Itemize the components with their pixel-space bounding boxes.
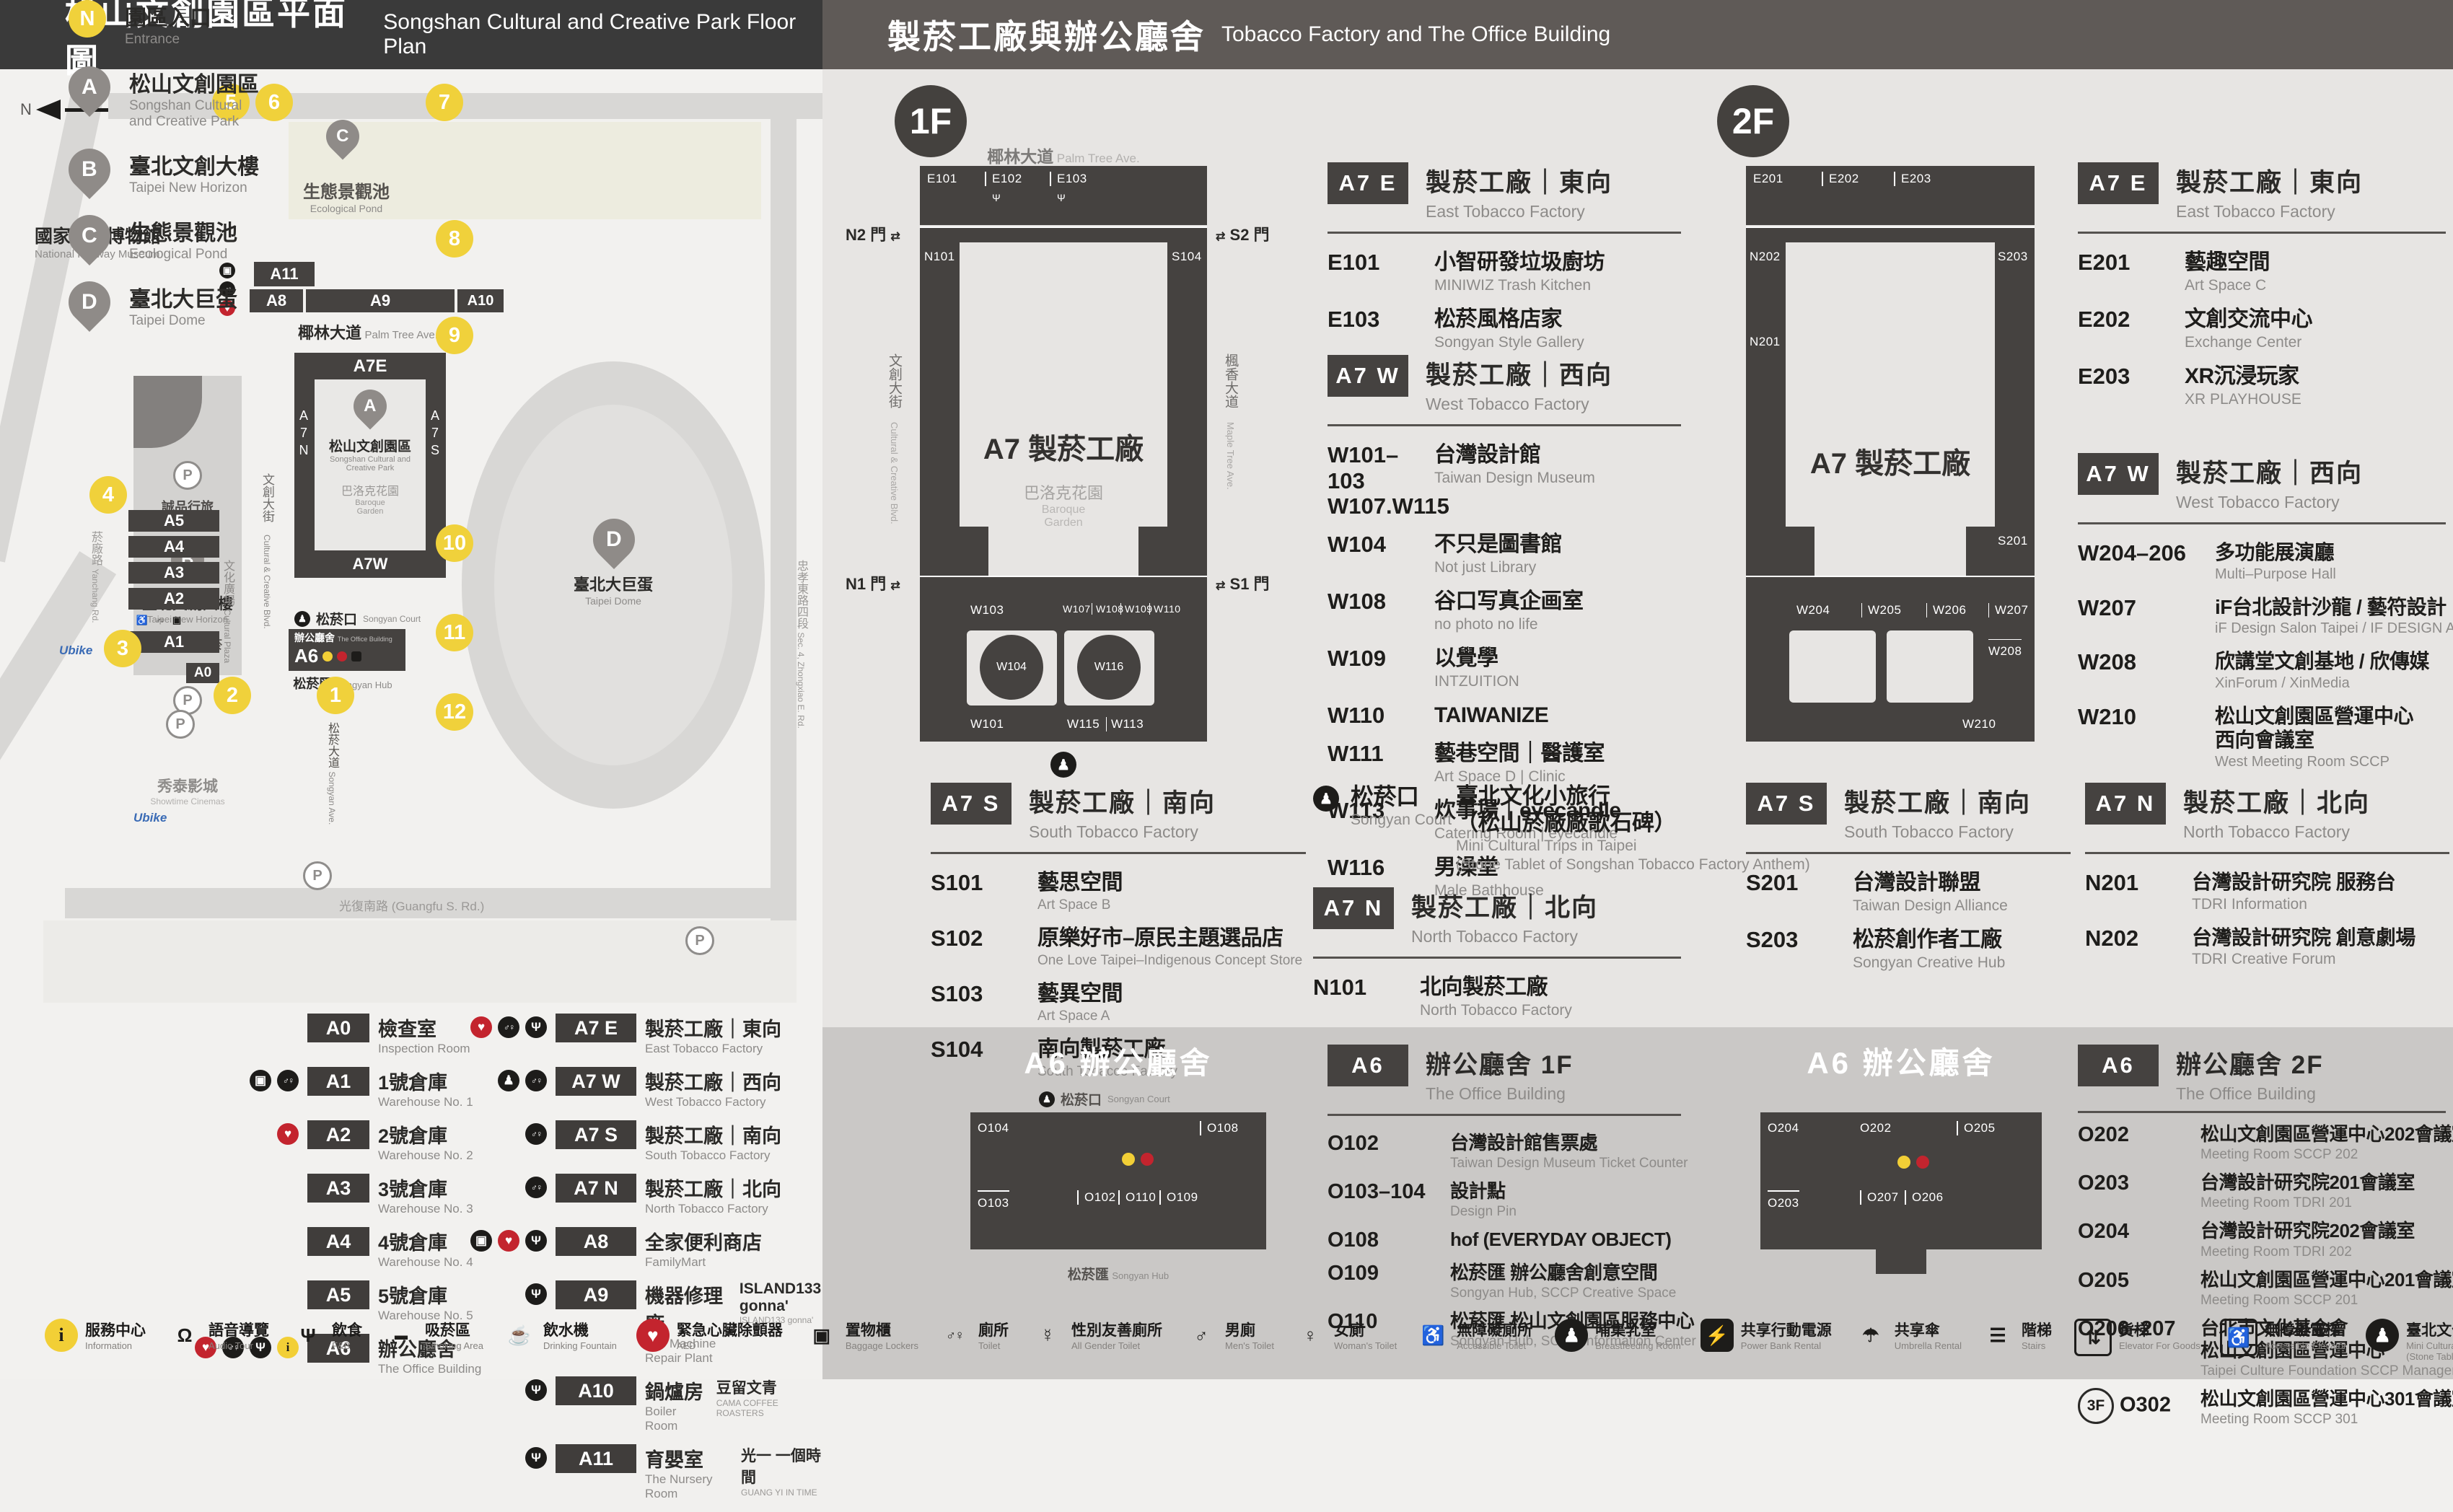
footer-item: 無障礙電梯 Accessible Elevator (2220, 1319, 2346, 1356)
legend-factory-en: The Nursery Room (645, 1472, 734, 1501)
legend-factory-zh: 製菸工廠｜東向 (645, 1014, 781, 1042)
legend-factory-badge: A7 N (556, 1174, 636, 1203)
divider (1328, 232, 1681, 234)
row-icon (1291, 704, 1317, 730)
footer-item: 性別友善廁所 All Gender Toilet (1031, 1319, 1165, 1352)
office-en: The Office Building (338, 636, 392, 643)
room-row: O102 台灣設計館售票處Taiwan Design Museum Ticket… (1328, 1132, 1681, 1172)
park-en2: Creative Park (307, 464, 433, 472)
room-e102: E102 (985, 172, 1022, 186)
court-zh: 松菸口 (1061, 1089, 1102, 1109)
row-icon (1277, 976, 1303, 1002)
room-w101: W101 (970, 717, 1004, 731)
divider (2078, 232, 2446, 234)
plan1-stair-block (1138, 527, 1167, 576)
songyanave-zh: 松菸大道 (326, 722, 338, 768)
row-icon (895, 983, 921, 1008)
right-panel: 製菸工廠與辦公廳舍 Tobacco Factory and The Office… (822, 0, 2453, 1379)
row-icon (2042, 542, 2068, 568)
room-text: 谷口写真企画室no photo no life (1434, 589, 1681, 633)
info-icon (1122, 1153, 1135, 1166)
room-text: 台灣設計研究院201會議室Meeting Room TDRI 201 (2200, 1172, 2446, 1211)
footer-item: 廁所 Toilet (938, 1319, 1012, 1352)
gate-s2: ⇄ S2 門 (1216, 222, 1270, 245)
fnb-icon (525, 1283, 547, 1305)
legend-factory-text: 製菸工廠｜西向 West Tobacco Factory (645, 1067, 789, 1109)
a7-building-map: A7E A7N A7S A7W A 松山文創園區 Songshan Cultur… (294, 353, 446, 578)
room-text: 小智研發垃圾廚坊MINIWIZ Trash Kitchen (1434, 250, 1681, 294)
room-row: W111 藝巷空間｜醫護室Art Space D | Clinic (1328, 741, 1681, 786)
room-text: 松菸匯 辦公廳舍創意空間Songyan Hub, SCCP Creative S… (1450, 1262, 1681, 1301)
room-row: W108 谷口写真企画室no photo no life (1328, 589, 1681, 633)
yanchang-rd-label: 菸廠路 Yanchang Rd. (87, 531, 104, 623)
legend-factory-text: 育嬰室 The Nursery Room 光一 一個時間 GUANG YI IN… (645, 1444, 822, 1501)
room-text: 藝趣空間Art Space C (2185, 250, 2446, 294)
room-row: N201 台灣設計研究院 服務台TDRI Information (2085, 870, 2449, 913)
building-a1: A1 (128, 631, 219, 653)
room-text: XR沉浸玩家XR PLAYHOUSE (2185, 364, 2446, 408)
legend-factory-text: 製菸工廠｜北向 North Tobacco Factory (645, 1174, 789, 1216)
room-text: 設計點Design Pin (1450, 1180, 1681, 1220)
room-no: W101–103W107.W115 (1328, 442, 1434, 519)
map-pin-b: B (60, 140, 119, 199)
a7e-map-label: A7E (354, 356, 387, 377)
goods-elevator-icon (2074, 1319, 2112, 1356)
section-2f-a7n: A7 N 製菸工廠｜北向North Tobacco Factory N201 台… (2085, 783, 2449, 980)
dome-labels: 臺北大巨蛋 Taipei Dome (505, 572, 721, 607)
section-zh: 製菸工廠｜北向 (2183, 783, 2370, 819)
legend-place-en1: Ecological Pond (129, 247, 237, 263)
section-zh: 製菸工廠｜西向 (2176, 453, 2363, 490)
legend-building-en: Warehouse No. 4 (378, 1255, 473, 1270)
footer-text: 階梯 Stairs (2022, 1319, 2055, 1351)
left-panel: 松山文創園區平面圖 Songshan Cultural and Creative… (0, 0, 822, 1379)
eslite-hotel-block (133, 376, 202, 448)
legend-factory-row: A7 S 製菸工廠｜南向 South Tobacco Factory (462, 1120, 822, 1163)
plan1-west-pocket: W104 (967, 630, 1057, 706)
a6-2f-building: O204 O203 O207 O206 O205 O202 (1760, 1112, 2042, 1249)
plan2-stair-block (1966, 527, 1995, 576)
fnb-icon (291, 1319, 325, 1352)
fnb-icon (525, 1230, 547, 1252)
plan1-top-band: E101 E102 E103 (920, 166, 1207, 225)
row-icon (895, 1038, 921, 1064)
section-1f-a7e: A7 E 製菸工廠｜東向East Tobacco Factory E101 小智… (1328, 162, 1681, 364)
plaza-en: Cultural Plaza (222, 609, 232, 663)
legend-factory-en: South Tobacco Factory (645, 1148, 781, 1163)
room-s104: S104 (1172, 250, 1202, 264)
aed-icon (277, 1123, 299, 1145)
a9-label: A9 (370, 291, 390, 310)
court-name: 松菸口 Songyan Court (1351, 783, 1444, 829)
a6-1f-title: A6 辦公廳舍 (931, 1039, 1306, 1083)
section-en: West Tobacco Factory (1426, 395, 1612, 414)
room-o108: O108 (1200, 1121, 1239, 1135)
room-row: O103–104 設計點Design Pin (1328, 1180, 1681, 1220)
legend-place-en1: Taipei New Horizon (129, 180, 259, 196)
yanchang-en: Yanchang Rd. (90, 568, 100, 623)
room-row: E203 XR沉浸玩家XR PLAYHOUSE (2078, 364, 2446, 408)
plan1-street-top: 椰林大道 Palm Tree Ave. (955, 143, 1172, 167)
a7w-map-label: A7W (353, 555, 388, 573)
footer-text: 性別友善廁所 All Gender Toilet (1071, 1319, 1165, 1351)
room-w116: W116 (1094, 661, 1124, 674)
room-text: 台灣設計研究院 服務台TDRI Information (2192, 870, 2449, 913)
legend-place-row: A 松山文創園區 Songshan Cultural and Creative … (69, 66, 357, 130)
right-title-zh: 製菸工廠與辦公廳舍 (887, 11, 1206, 58)
room-row: O204 台灣設計研究院202會議室Meeting Room TDRI 202 (2078, 1220, 2446, 1260)
room-no: E203 (2078, 364, 2185, 390)
womens-icon (1294, 1319, 1327, 1352)
ubike-logo: Ubike (59, 643, 92, 658)
a6-2f-title: A6 辦公廳舍 (1732, 1039, 2071, 1083)
legend-factory-main: 製菸工廠｜北向 North Tobacco Factory (645, 1174, 781, 1216)
room-e203: E203 (1894, 172, 1931, 186)
room-row: O108 hof (EVERYDAY OBJECT) (1328, 1228, 1681, 1252)
a2-label: A2 (164, 589, 184, 608)
a6-2f-stub (1876, 1249, 1926, 1274)
room-row: W210 松山文創園區營運中心西向會議室West Meeting Room SC… (2078, 704, 2446, 770)
walk-icon (294, 611, 310, 627)
room-no: N101 (1313, 975, 1420, 1001)
room-row: W101–103W107.W115 台灣設計館Taiwan Design Mus… (1328, 442, 1681, 519)
room-e202: E202 (1822, 172, 1859, 186)
legend-place-zh: 松山文創園區 (129, 66, 259, 98)
legend-building-text: 5號倉庫 Warehouse No. 5 (378, 1280, 473, 1323)
room-text: 松山文創園區營運中心202會議室Meeting Room SCCP 202 (2200, 1123, 2446, 1163)
baroque-en2: Garden (307, 507, 433, 516)
aed-icon (636, 1319, 670, 1352)
legend-building-badge: A1 (307, 1067, 369, 1096)
a10-label: A10 (468, 293, 494, 309)
legend-factory-extra: 光一 一個時間 GUANG YI IN TIME (741, 1444, 822, 1498)
walk-icon (1039, 1091, 1055, 1107)
songyanave-en: Songyan Ave. (327, 771, 337, 825)
cultural-plaza-label: 文化廣場 Cultural Plaza (219, 560, 236, 663)
ccb-zh: 文創大街 (260, 473, 274, 522)
zhongxiao-en: Sec. 4, Zhongxiao E. Rd. (796, 632, 806, 728)
room-no: W207 (2078, 595, 2215, 621)
legend-factory-extra-en: CAMA COFFEE ROASTERS (716, 1398, 822, 1418)
section-zh: 辦公廳舍 1F (1426, 1045, 1574, 1081)
room-text: 台灣設計研究院 創意劇場TDRI Creative Forum (2192, 926, 2449, 969)
room-row: S203 松菸創作者工廠Songyan Creative Hub (1746, 927, 2071, 972)
badge-a7e: A7 E (2078, 162, 2159, 204)
building-a2: A2 (128, 588, 219, 610)
section-zh: 辦公廳舍 2F (2176, 1045, 2324, 1081)
badge-a7w: A7 W (2078, 453, 2159, 495)
locker-icon (351, 651, 361, 661)
plan1-courtyard: A7 製菸工廠 巴洛克花園 Baroque Garden (960, 426, 1167, 529)
row-icon (2042, 597, 2068, 623)
court-en: Songyan Court (1107, 1094, 1170, 1104)
breastfeeding-icon (1555, 1319, 1588, 1352)
zhongxiao-zh: 忠孝東路四段 (795, 560, 807, 629)
dome-zh: 臺北大巨蛋 (505, 572, 721, 595)
divider (1328, 424, 1681, 426)
row-icon (2042, 1173, 2068, 1199)
parking-icon: P (685, 926, 714, 955)
room-no: W204–206 (2078, 540, 2215, 566)
room-text: 台灣設計研究院202會議室Meeting Room TDRI 202 (2200, 1220, 2446, 1260)
divider (1313, 957, 1681, 959)
room-o102: O102 (1077, 1190, 1116, 1205)
legend-factory-row: A10 鍋爐房 Boiler Room 豆留文青 CAMA COFFEE ROA… (462, 1376, 822, 1433)
plan1-south-block: W103 W107 W108 W109 W110 W104 W116 W101 … (920, 593, 1207, 742)
accessible-elevator-icon (2220, 1319, 2257, 1356)
room-o203: O203 (1768, 1190, 1799, 1210)
stairs-icon (1981, 1319, 2014, 1352)
room-row: W109 以覺學INTZUITION (1328, 646, 1681, 690)
room-text: 松山文創園區營運中心301會議室Meeting Room SCCP 301 (2200, 1388, 2446, 1428)
legend-building-text: 3號倉庫 Warehouse No. 3 (378, 1174, 473, 1216)
footer-item: 緊急心臟除顫器 AED (636, 1319, 786, 1352)
footer-text: 服務中心 Information (85, 1319, 149, 1351)
cinema-zh: 秀泰影城 (108, 775, 267, 796)
footer-text: 共享傘 Umbrella Rental (1895, 1319, 1962, 1351)
info-icon (322, 651, 333, 661)
room-text: 多功能展演廳Multi–Purpose Hall (2215, 540, 2446, 583)
room-row: W104 不只是圖書館Not just Library (1328, 532, 1681, 576)
aed-icon (337, 651, 347, 661)
room-row: W110 TAIWANIZE (1328, 703, 1681, 729)
legend-place-zh: 臺北文創大樓 (129, 149, 259, 180)
room-no: E101 (1328, 250, 1434, 276)
room-row: N101 北向製菸工廠North Tobacco Factory (1313, 975, 1681, 1019)
court-map-label: 松菸口 Songyan Court (294, 609, 421, 628)
legend-place-zh: 園區入口 (125, 0, 211, 32)
legend-place-text: 臺北大巨蛋 Taipei Dome (129, 281, 237, 329)
section-zh: 製菸工廠｜北向 (1411, 887, 1598, 924)
room-w206: W206 (1926, 603, 1966, 617)
court-en: Songyan Court (1351, 812, 1444, 829)
room-n101: N101 (924, 250, 955, 264)
parking-icon: P (173, 461, 202, 490)
a7-center-label: A7 製菸工廠 (1786, 440, 1995, 482)
section-en: West Tobacco Factory (2176, 493, 2363, 512)
divider (2078, 1111, 2446, 1113)
legend-factory-main: 鍋爐房 Boiler Room (645, 1376, 709, 1433)
gate-n2: N2 門 ⇄ (846, 222, 900, 245)
room-w210: W210 (1962, 717, 1996, 731)
room-no: O205 (2078, 1269, 2200, 1293)
room-text: hof (EVERYDAY OBJECT) (1450, 1228, 1681, 1251)
footer-text: 哺集乳室 Breastfeeding Room (1595, 1319, 1681, 1351)
audio-icon (168, 1319, 201, 1352)
room-row: S201 台灣設計聯盟Taiwan Design Alliance (1746, 870, 2071, 915)
walk-icon (2366, 1319, 2399, 1352)
songyan-ave-label: 松菸大道 Songyan Ave. (323, 722, 341, 825)
toilet-icon (498, 1016, 519, 1038)
room-no: 3FO302 (2078, 1388, 2200, 1424)
map-pin-c: C (60, 206, 119, 265)
a6-1f-building: O104 O103 O102 O110 O109 O108 (970, 1112, 1266, 1249)
legend-factory-extra-zh: 光一 一個時間 (741, 1444, 822, 1487)
legend-factory-text: 製菸工廠｜南向 South Tobacco Factory (645, 1120, 789, 1163)
plaza-zh: 文化廣場 (221, 560, 234, 606)
room-no: O108 (1328, 1228, 1450, 1252)
room-no: O103–104 (1328, 1180, 1450, 1204)
toilet-icon (525, 1177, 547, 1198)
aed-icon (498, 1230, 519, 1252)
legend-factory-main: 育嬰室 The Nursery Room (645, 1444, 734, 1501)
divider (931, 852, 1306, 854)
room-w113: W113 (1106, 717, 1144, 731)
umbrella-icon (1854, 1319, 1887, 1352)
room-row: W207 iF台北設計沙龍 / 藝符設計iF Design Salon Taip… (2078, 595, 2446, 638)
legend-building-badge: A2 (307, 1120, 369, 1149)
room-w103: W103 (970, 603, 1004, 617)
hub-en: Songyan Hub (1112, 1270, 1169, 1281)
plan2-east-pocket (1887, 630, 1973, 703)
a6-building-map: 辦公廳舍 The Office Building A6 (289, 629, 405, 671)
room-text: 原樂好市–原民主題選品店One Love Taipei–Indigenous C… (1037, 926, 1306, 969)
room-no: E201 (2078, 250, 2185, 276)
legend-factory-main: 製菸工廠｜西向 West Tobacco Factory (645, 1067, 781, 1109)
legend-factory-main: 全家便利商店 FamilyMart (645, 1227, 762, 1270)
room-n201: N201 (1750, 335, 1781, 349)
room-no: W111 (1328, 741, 1434, 767)
legend-factory-en: North Tobacco Factory (645, 1202, 781, 1216)
legend-factory-extra-en: GUANG YI IN TIME (741, 1487, 822, 1498)
room-row: S101 藝思空間Art Space B (931, 870, 1306, 913)
divider (2078, 522, 2446, 524)
legend-factory-badge: A7 S (556, 1120, 636, 1149)
locker-icon (470, 1230, 492, 1252)
row-icon (2042, 251, 2068, 277)
room-text: 不只是圖書館Not just Library (1434, 532, 1681, 576)
legend-factory-zh: 製菸工廠｜西向 (645, 1067, 781, 1095)
row-icon (1291, 1133, 1317, 1159)
toilet-icon (938, 1319, 971, 1352)
section-zh: 製菸工廠｜南向 (1844, 783, 2031, 819)
baroque-en2: Garden (960, 517, 1167, 529)
legend-place-row: D 臺北大巨蛋 Taipei Dome (69, 281, 357, 329)
room-no: W104 (1328, 532, 1434, 558)
legend-factory-row: A7 W 製菸工廠｜西向 West Tobacco Factory (462, 1067, 822, 1109)
a6-map-label: A6 (294, 645, 318, 667)
room-row: N202 台灣設計研究院 創意劇場TDRI Creative Forum (2085, 926, 2449, 969)
room-row: O203 台灣設計研究院201會議室Meeting Room TDRI 201 (2078, 1172, 2446, 1211)
room-w104: W104 (996, 661, 1027, 674)
room-no: O203 (2078, 1172, 2200, 1195)
gate-s1: ⇄ S1 門 (1216, 571, 1270, 594)
legend-factory-zh: 製菸工廠｜南向 (645, 1120, 781, 1148)
row-icon (2042, 1389, 2068, 1415)
baroque-zh: 巴洛克花園 (960, 480, 1167, 504)
room-text: 台灣設計館售票處Taiwan Design Museum Ticket Coun… (1450, 1132, 1681, 1172)
row-icon (2042, 706, 2068, 731)
fnb-icon (1291, 308, 1317, 334)
footer-text: 臺北文化小旅行(松山菸廠廠歌石碑) Mini Cultural Trips in… (2406, 1319, 2453, 1362)
row-icon (1291, 1182, 1317, 1208)
room-o104: O104 (978, 1121, 1009, 1135)
plan2-corridor-n (1746, 227, 2035, 242)
footer-item: 共享傘 Umbrella Rental (1854, 1319, 1962, 1352)
row-icon (1710, 871, 1736, 897)
row-icon (2042, 308, 2068, 334)
parking-icon: P (303, 861, 332, 890)
room-text: 藝思空間Art Space B (1037, 870, 1306, 913)
legend-places: N 園區入口 Entrance A 松山文創園區 Songshan Cultur… (0, 0, 357, 348)
room-row: E101 小智研發垃圾廚坊MINIWIZ Trash Kitchen (1328, 250, 1681, 294)
legend-place-zh: 生態景觀池 (129, 215, 237, 247)
legend-place-en1: Songshan Cultural (129, 98, 259, 114)
room-no: S101 (931, 870, 1037, 896)
room-s201: S201 (1998, 534, 2028, 548)
row-icon (2049, 927, 2075, 953)
building-a0: A0 (186, 663, 219, 683)
parking-p: P (175, 716, 185, 733)
entrance-12: 12 (436, 693, 473, 731)
ccb-en: Cultural & Creative Blvd. (262, 535, 272, 629)
room-no: W108 (1328, 589, 1434, 615)
a7w-map: A7W (294, 550, 446, 578)
a5-label: A5 (164, 511, 184, 530)
entrance-8: 8 (436, 220, 473, 258)
badge-a7s: A7 S (1746, 783, 1827, 825)
row-icon (2042, 1270, 2068, 1296)
room-o109: O109 (1159, 1190, 1198, 1205)
fnb-icon (1057, 192, 1066, 203)
room-text: 藝異空間Art Space A (1037, 981, 1306, 1024)
legend-factory-en: Boiler Room (645, 1405, 709, 1433)
walk-icon (1050, 752, 1076, 778)
plan2-top-band: E201 E202 E203 (1746, 166, 2035, 225)
plan-a6-2f: A6 辦公廳舍 O204 O203 O207 O206 O205 O202 (1732, 1039, 2071, 1313)
entrance-marker: N (69, 0, 106, 38)
room-text: 松山文創園區營運中心西向會議室West Meeting Room SCCP (2215, 704, 2446, 770)
room-row: E201 藝趣空間Art Space C (2078, 250, 2446, 294)
footer-text: 共享行動電源 Power Bank Rental (1741, 1319, 1835, 1351)
footer-text: 置物櫃 Baggage Lockers (846, 1319, 918, 1351)
legend-factory-badge: A9 (556, 1280, 636, 1309)
room-row: W204–206 多功能展演廳Multi–Purpose Hall (2078, 540, 2446, 583)
guangfu-rd-label: 光復南路 (Guangfu S. Rd.) (339, 896, 484, 914)
cinema-en: Showtime Cinemas (108, 796, 267, 806)
room-text: TAIWANIZE (1434, 703, 1681, 729)
a7-courtyard-map: A 松山文創園區 Songshan Cultural and Creative … (315, 379, 426, 550)
section-a6-2f: A6 辦公廳舍 2FThe Office Building O202 松山文創園… (2078, 1045, 2446, 1436)
room-row: 3FO302 松山文創園區營運中心301會議室Meeting Room SCCP… (2078, 1388, 2446, 1428)
court-zh: 松菸口 (316, 609, 357, 628)
legend-factory-zh: 全家便利商店 (645, 1227, 762, 1255)
room-text: 欣講堂文創基地 / 欣傳媒XinForum / XinMedia (2215, 649, 2446, 692)
footer-item: 男廁 Men's Toilet (1185, 1319, 1274, 1352)
room-s203: S203 (1998, 250, 2028, 264)
power-icon (1701, 1319, 1734, 1352)
room-w108: W108 (1092, 603, 1124, 615)
section-zh: 製菸工廠｜南向 (1029, 783, 1216, 819)
room-text: 松菸創作者工廠Songyan Creative Hub (1853, 927, 2071, 972)
legend-factory-badge: A11 (556, 1444, 636, 1473)
entrance-1: 1 (317, 677, 354, 714)
room-no: E103 (1328, 307, 1434, 333)
row-icon (2042, 651, 2068, 677)
legend-factory-extra-zh: ISLAND133 gonna' (740, 1280, 822, 1315)
row-icon (1291, 533, 1317, 559)
building-a4: A4 (128, 536, 219, 558)
badge-a7s: A7 S (931, 783, 1012, 825)
water-icon (503, 1319, 536, 1352)
legend-building-text: 2號倉庫 Warehouse No. 2 (378, 1120, 473, 1163)
legend-building-en: Inspection Room (378, 1042, 470, 1056)
room-e201: E201 (1753, 172, 1783, 186)
palm-zh: 椰林大道 (987, 147, 1053, 166)
legend-factory-text: 製菸工廠｜東向 East Tobacco Factory (645, 1014, 789, 1056)
room-row: E103 松菸風格店家Songyan Style Gallery (1328, 307, 1681, 351)
section-en: South Tobacco Factory (1029, 822, 1216, 842)
